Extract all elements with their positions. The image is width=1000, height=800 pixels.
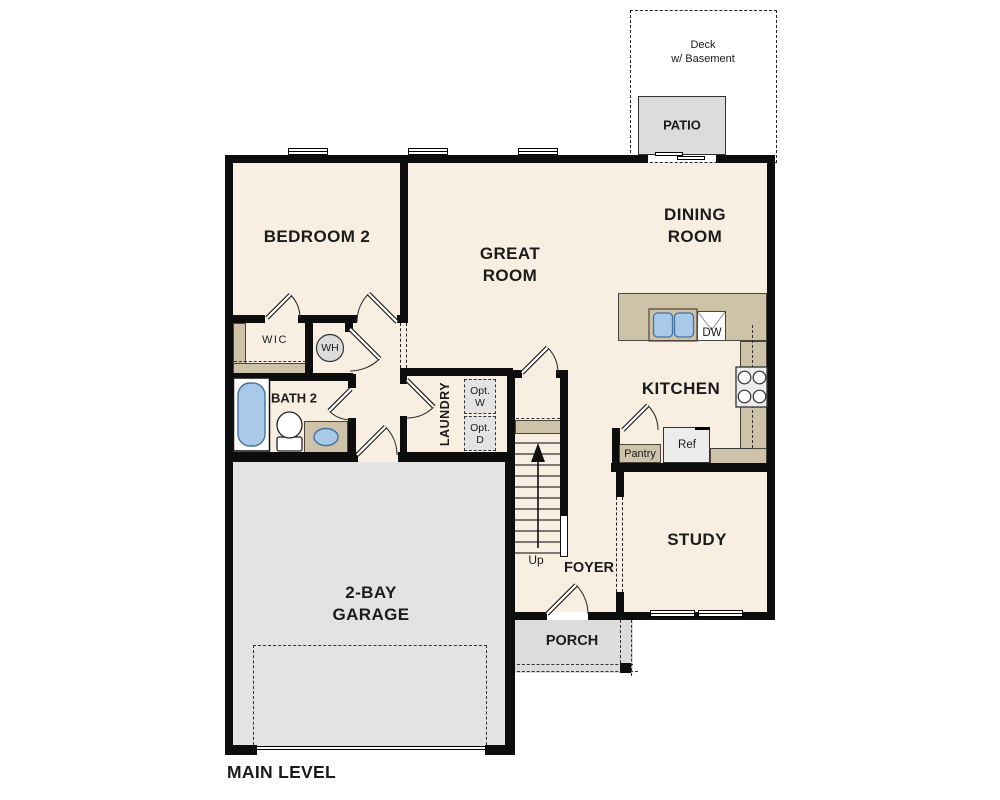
dining-room-label: DINING ROOM — [664, 204, 726, 248]
window — [408, 148, 448, 155]
stair-rail — [560, 515, 568, 557]
plan-title: MAIN LEVEL — [227, 762, 336, 783]
wall — [400, 155, 408, 323]
kitchen-label: KITCHEN — [642, 378, 720, 400]
wall — [348, 374, 356, 388]
wall — [225, 315, 265, 323]
wic-rod-line — [234, 361, 306, 362]
laundry-label: LAUNDRY — [438, 382, 452, 446]
floor-plan: BEDROOM 2 GREAT ROOM DINING ROOM KITCHEN… — [0, 0, 1000, 800]
wall — [767, 155, 775, 620]
porch-post — [620, 663, 631, 673]
kitchen-counter-top — [618, 293, 767, 341]
wall — [225, 155, 648, 163]
wall — [588, 612, 620, 620]
wall — [305, 315, 313, 381]
porch-dash-v2 — [631, 620, 632, 676]
closet-shelf-line — [516, 418, 560, 419]
bath2-label: BATH 2 — [271, 391, 317, 406]
window — [698, 610, 743, 617]
pantry-label: Pantry — [624, 448, 656, 460]
wall — [400, 376, 407, 384]
wic-label: WIC — [262, 333, 288, 347]
upper-cabinet-line-v — [752, 325, 753, 448]
wall — [611, 463, 775, 472]
window — [288, 148, 328, 155]
optional-dryer-label: Opt. D — [470, 422, 490, 446]
porch-label: PORCH — [546, 633, 598, 649]
wall — [225, 452, 358, 462]
wall — [560, 370, 568, 515]
wall — [345, 323, 353, 332]
wall — [505, 462, 515, 755]
wall — [225, 373, 353, 381]
great-room-label: GREAT ROOM — [480, 243, 540, 287]
wall — [400, 368, 513, 376]
patio-label: PATIO — [663, 118, 701, 133]
wall — [397, 315, 408, 323]
study-label: STUDY — [667, 529, 727, 551]
garage-label: 2-BAY GARAGE — [332, 582, 409, 626]
wall — [400, 416, 407, 460]
foyer-label: FOYER — [564, 560, 614, 576]
wall — [225, 745, 257, 755]
garage-door — [257, 746, 485, 750]
stairs-up-label: Up — [528, 553, 543, 567]
wall — [616, 472, 624, 497]
wall — [505, 612, 547, 620]
wall — [398, 452, 515, 462]
cased-opening-study — [616, 497, 623, 592]
water-heater-label: WH — [321, 342, 339, 354]
bedroom2-label: BEDROOM 2 — [264, 226, 371, 248]
optional-washer-label: Opt. W — [470, 385, 490, 409]
wall — [507, 370, 515, 462]
window — [650, 610, 695, 617]
garage-door-swing — [253, 645, 487, 745]
kitchen-counter-lower — [710, 448, 767, 464]
bath-vanity — [304, 421, 348, 453]
refrigerator-label: Ref — [678, 439, 696, 451]
deck-label: Deck w/ Basement — [671, 38, 735, 66]
upper-cabinet-line-h — [712, 448, 753, 449]
kitchen-counter-right — [740, 341, 767, 461]
stair-closet-shelf — [515, 420, 561, 434]
dishwasher-label: DW — [702, 327, 721, 339]
window — [518, 148, 558, 155]
sliding-door-panel — [677, 156, 705, 160]
wall — [485, 745, 515, 755]
porch-dash-h1 — [512, 664, 633, 665]
cased-opening-hall — [400, 323, 407, 368]
